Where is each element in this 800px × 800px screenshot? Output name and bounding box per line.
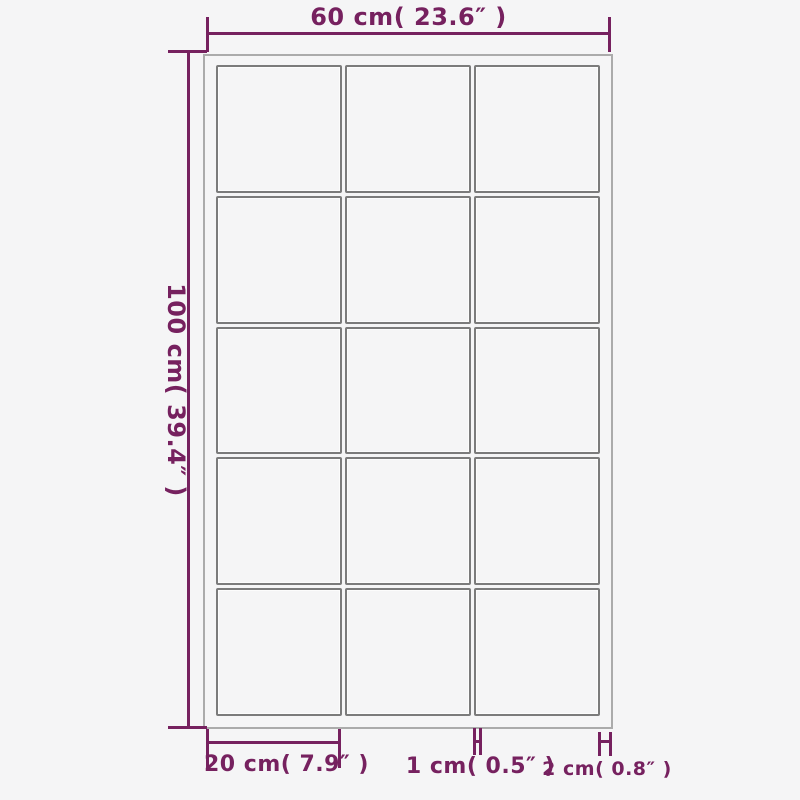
mirror-pane <box>474 65 600 193</box>
mirror-pane <box>216 65 342 193</box>
width-dimension-label: 60 cm( 23.6″ ) <box>207 3 610 31</box>
mirror-pane <box>345 327 471 455</box>
frame-depth-tick-right <box>609 732 612 756</box>
mirror-frame <box>203 54 613 729</box>
mirror-pane <box>474 588 600 716</box>
mirror-pane <box>216 588 342 716</box>
mirror-pane <box>216 196 342 324</box>
height-dimension-label: 100 cm( 39.4″ ) <box>162 283 190 497</box>
frame-depth-label: 2 cm( 0.8″ ) <box>532 758 682 780</box>
height-dimension-label-wrap: 100 cm( 39.4″ ) <box>152 51 200 729</box>
product-dimension-diagram: { "diagram": { "product": "grid-mirror",… <box>0 0 800 800</box>
mirror-pane <box>474 196 600 324</box>
mullion-width-bar <box>473 740 482 743</box>
mirror-pane <box>474 457 600 585</box>
frame-depth-bar <box>598 740 612 743</box>
mirror-pane-grid <box>216 65 600 716</box>
pane-width-dimension-label: 20 cm( 7.9″ ) <box>204 752 344 777</box>
width-dimension-line <box>207 32 610 35</box>
mirror-pane <box>345 196 471 324</box>
mirror-pane <box>345 588 471 716</box>
pane-width-dimension-line <box>207 741 341 744</box>
mirror-pane <box>345 457 471 585</box>
mirror-pane <box>345 65 471 193</box>
mirror-pane <box>216 327 342 455</box>
frame-depth-tick-left <box>598 732 601 756</box>
mirror-pane <box>216 457 342 585</box>
mirror-pane <box>474 327 600 455</box>
